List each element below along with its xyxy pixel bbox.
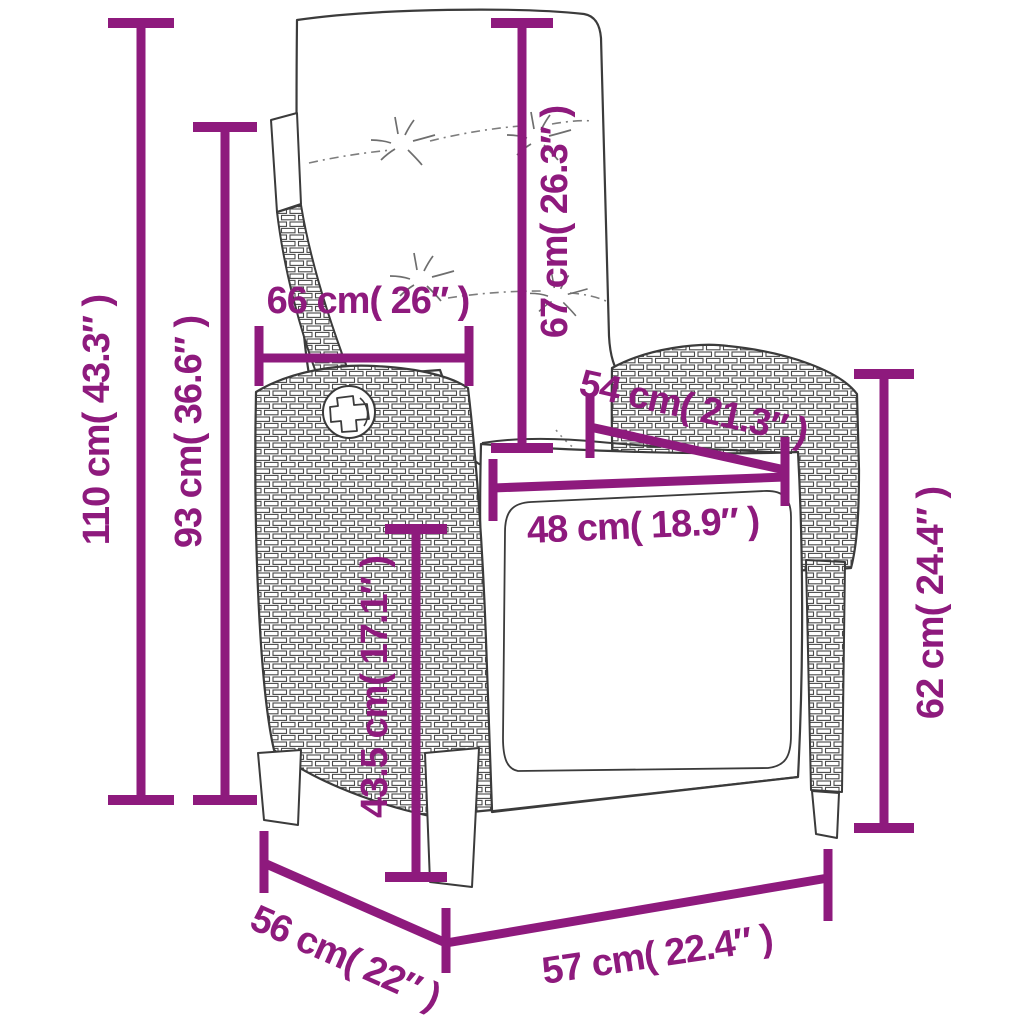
back-post-cap — [271, 113, 301, 212]
right-foot — [812, 791, 839, 838]
label-backrest-height: 93 cm( 36.6″ ) — [168, 316, 210, 548]
label-seat-height: 43.5 cm( 17.1″ ) — [354, 556, 396, 818]
label-total-height: 110 cm( 43.3″ ) — [76, 295, 118, 545]
label-width: 57 cm( 22.4″ ) — [539, 917, 775, 993]
footrest-leg — [425, 748, 479, 887]
dimension-diagram-canvas: 110 cm( 43.3″ ) 93 cm( 36.6″ ) 66 cm( 26… — [0, 0, 1024, 1024]
dim-armrest-height — [854, 374, 914, 828]
left-foot — [258, 750, 301, 825]
label-depth: 56 cm( 22″ ) — [244, 897, 446, 1018]
right-rear-leg — [806, 560, 845, 792]
chair-dimension-diagram: 110 cm( 43.3″ ) 93 cm( 36.6″ ) 66 cm( 26… — [0, 0, 1024, 1024]
label-armrest-height: 62 cm( 24.4″ ) — [910, 487, 952, 719]
recline-knob — [323, 386, 375, 438]
label-back-width: 66 cm( 26″ ) — [267, 280, 470, 322]
label-backrest-length: 67 cm( 26.3″ ) — [534, 106, 576, 338]
